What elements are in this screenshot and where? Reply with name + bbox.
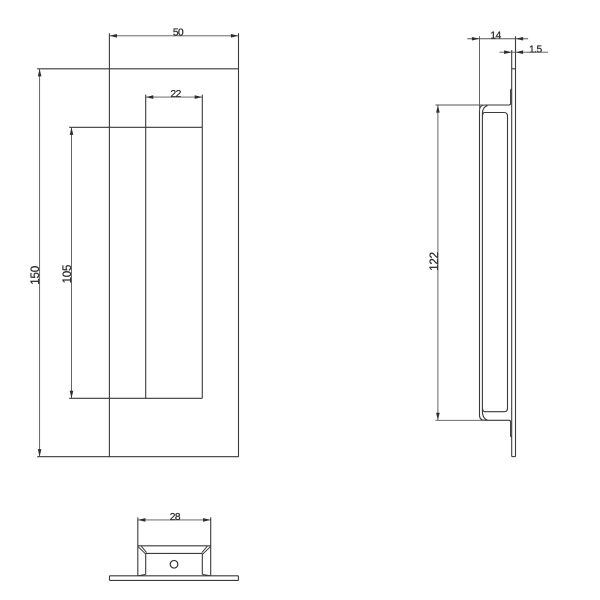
svg-text:22: 22	[171, 89, 182, 100]
svg-text:50: 50	[173, 28, 184, 39]
svg-text:150: 150	[30, 266, 42, 285]
svg-text:105: 105	[62, 265, 74, 284]
svg-text:122: 122	[429, 252, 441, 271]
svg-text:28: 28	[170, 512, 181, 523]
svg-text:14: 14	[490, 31, 501, 42]
svg-text:1.5: 1.5	[529, 44, 542, 55]
